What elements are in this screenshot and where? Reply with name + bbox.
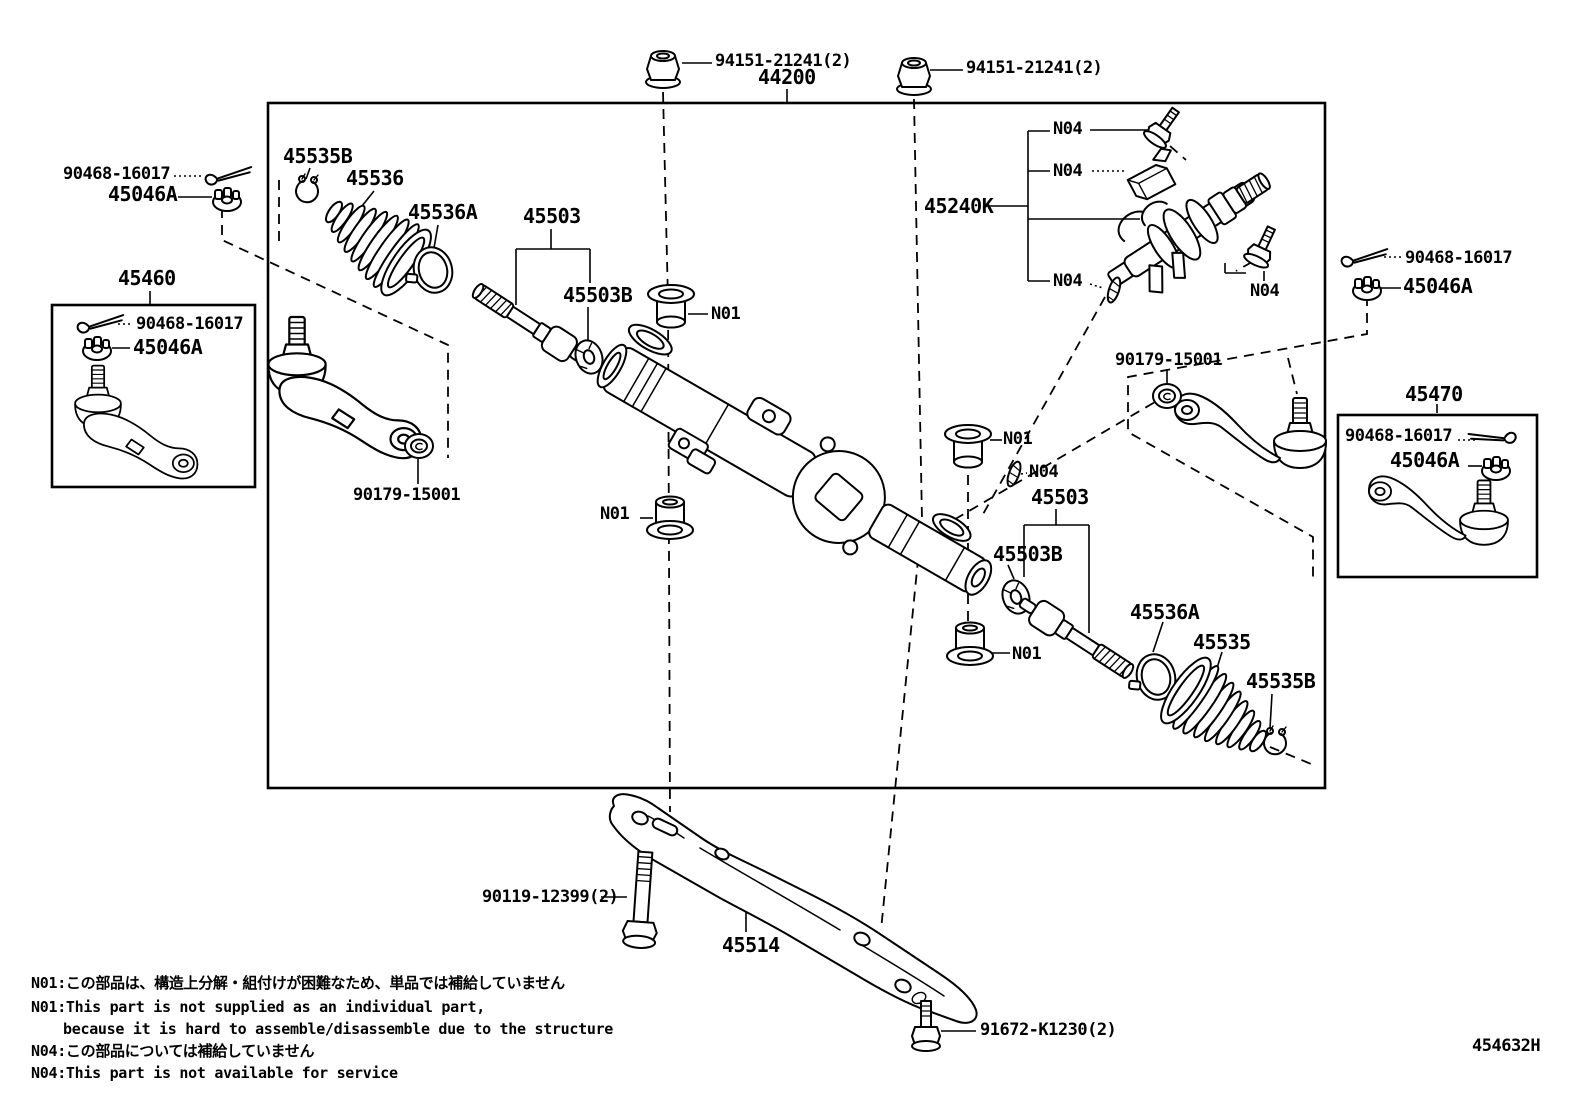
label-cotter-pin-d: 90468-16017 xyxy=(1345,428,1452,446)
tie-rod-end-left-inner xyxy=(268,317,421,458)
label-claw-washer-b: 45503B xyxy=(993,544,1062,565)
castle-nut-b-icon xyxy=(83,337,111,360)
parts-diagram-page: 94151-21241(2) 94151-21241(2) 44200 9046… xyxy=(0,0,1592,1099)
valve-oring-icon xyxy=(1105,276,1123,304)
tie-rod-end-right-outer xyxy=(1369,476,1508,544)
cotter-pin-d-icon xyxy=(1469,429,1517,447)
mount-nut-right xyxy=(897,58,931,95)
label-n01-a: N01 xyxy=(711,306,740,324)
crossmember-bracket xyxy=(610,794,977,1023)
lock-nut-left xyxy=(405,434,433,458)
steering-gear-housing xyxy=(581,316,1013,622)
label-assembly: 44200 xyxy=(758,67,816,88)
diagram-canvas xyxy=(0,0,1592,1099)
valve-bracket xyxy=(1122,145,1186,203)
bracket-bolt-long xyxy=(622,851,663,949)
label-tie-rod-left: 45460 xyxy=(118,268,176,289)
mount-grommet-2 xyxy=(647,497,693,540)
label-tie-rod-right: 45470 xyxy=(1405,384,1463,405)
label-inner-rod-a: 45503 xyxy=(523,206,581,227)
label-castle-nut-d: 45046A xyxy=(1390,450,1459,471)
leader-lines xyxy=(112,63,1482,1031)
cotter-pin-a-icon xyxy=(205,167,253,185)
lock-nut-right xyxy=(1153,384,1181,408)
label-n01-d: N01 xyxy=(1012,646,1041,664)
mount-grommet-1 xyxy=(648,285,694,328)
rack-oring-right xyxy=(1005,460,1023,488)
mount-nut-left xyxy=(646,51,680,88)
label-cotter-pin-b: 90468-16017 xyxy=(136,316,243,334)
label-boot-right: 45535 xyxy=(1193,632,1251,653)
label-boot-clamp-a: 45535B xyxy=(283,146,352,167)
label-bolt-short: 91672-K1230(2) xyxy=(980,1022,1116,1040)
label-ring-clamp-a: 45536A xyxy=(408,202,477,223)
figure-code: 454632H xyxy=(1472,1038,1540,1056)
cotter-pin-b-icon xyxy=(77,315,125,333)
label-lock-nut-a: 90179-15001 xyxy=(353,487,460,505)
label-n04-c: N04 xyxy=(1053,273,1082,291)
label-n01-b: N01 xyxy=(600,506,629,524)
legend-n04-jp: N04:この部品については補給していません xyxy=(31,1044,314,1060)
label-n04-b: N04 xyxy=(1053,163,1082,181)
castle-nut-a-icon xyxy=(213,188,241,211)
label-castle-nut-b: 45046A xyxy=(133,337,202,358)
inner-tie-rod-right xyxy=(1014,590,1139,685)
legend-n01-en1: N01:This part is not supplied as an indi… xyxy=(31,1000,485,1016)
label-boot-clamp-b: 45535B xyxy=(1246,671,1315,692)
label-n04-d: N04 xyxy=(1250,283,1279,301)
label-crossmember: 45514 xyxy=(722,935,780,956)
label-claw-washer-a: 45503B xyxy=(563,285,632,306)
castle-nut-c-icon xyxy=(1353,277,1381,300)
label-valve-kit: 45240K xyxy=(924,196,993,217)
tie-rod-end-left-outer xyxy=(75,366,197,479)
label-n04-e: N04 xyxy=(1029,464,1058,482)
mount-grommet-4 xyxy=(947,623,993,666)
label-ring-clamp-b: 45536A xyxy=(1130,602,1199,623)
label-n01-c: N01 xyxy=(1003,431,1032,449)
label-lock-nut-b: 90179-15001 xyxy=(1115,352,1222,370)
label-nut-top-right: 94151-21241(2) xyxy=(966,60,1102,78)
valve-bolt-icon xyxy=(1142,103,1187,151)
label-inner-rod-b: 45503 xyxy=(1031,487,1089,508)
label-boot-left: 45536 xyxy=(346,168,404,189)
label-castle-nut-c: 45046A xyxy=(1403,276,1472,297)
mount-grommet-3 xyxy=(945,425,991,468)
legend-n01-en2: because it is hard to assemble/disassemb… xyxy=(63,1022,613,1038)
cotter-pin-c-icon xyxy=(1341,249,1389,267)
label-bolt-long: 90119-12399(2) xyxy=(482,889,618,907)
legend-n01-jp: N01:この部品は、構造上分解・組付けが困難なため、単品では補給していません xyxy=(31,976,565,992)
label-cotter-pin-c: 90468-16017 xyxy=(1405,250,1512,268)
castle-nut-d-icon xyxy=(1482,457,1510,480)
tie-rod-end-right-inner xyxy=(1175,394,1326,468)
label-n04-a: N04 xyxy=(1053,121,1082,139)
label-castle-nut-a: 45046A xyxy=(108,184,177,205)
legend-n04-en: N04:This part is not available for servi… xyxy=(31,1066,398,1082)
